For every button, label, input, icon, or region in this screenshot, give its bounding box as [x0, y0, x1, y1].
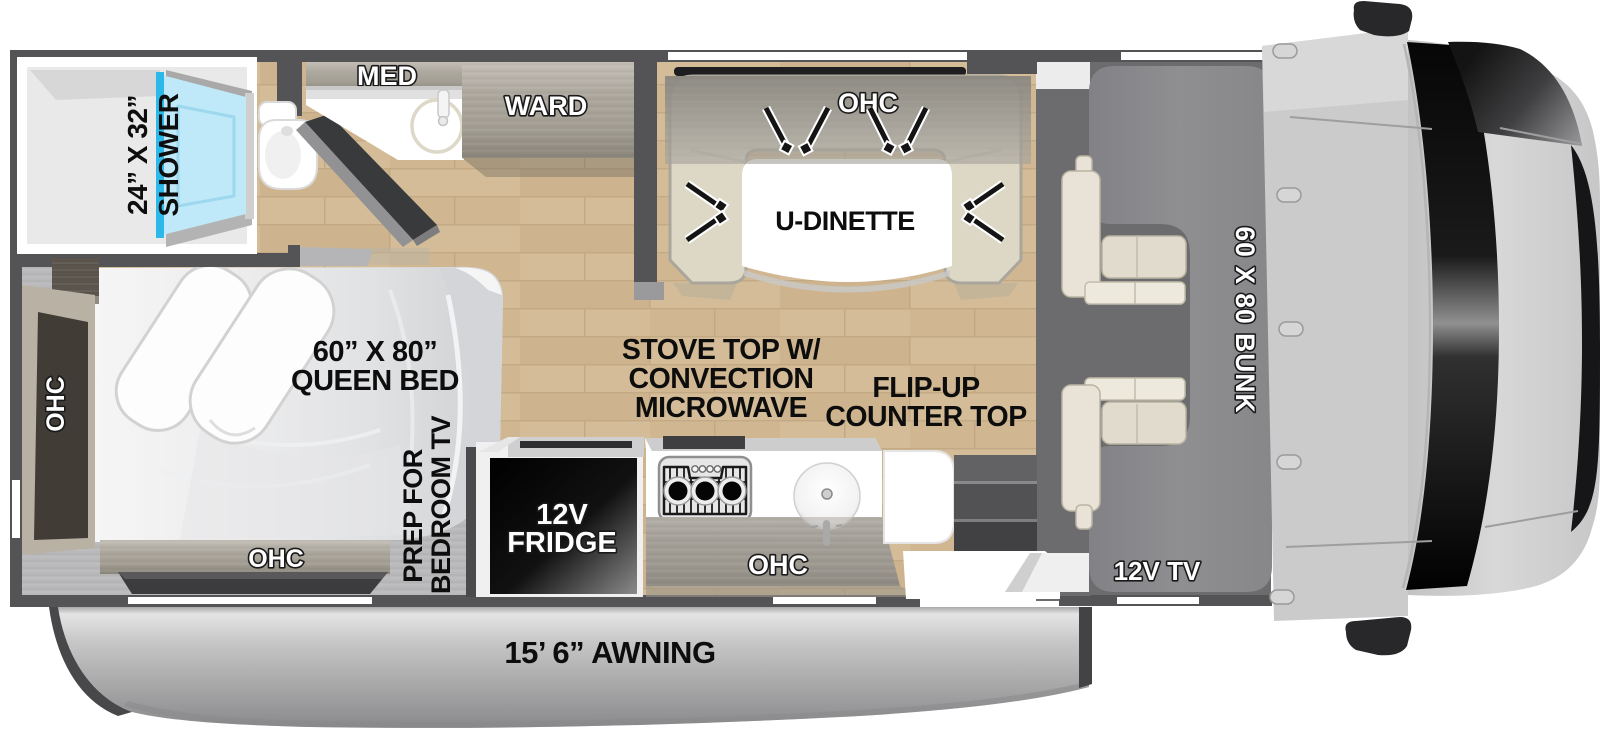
svg-text:COUNTER TOP: COUNTER TOP	[825, 401, 1027, 433]
svg-text:OHC: OHC	[748, 550, 808, 580]
svg-text:BEDROOM TV: BEDROOM TV	[426, 416, 456, 594]
svg-text:WARD: WARD	[505, 91, 588, 121]
svg-text:FRIDGE: FRIDGE	[507, 527, 617, 559]
svg-text:PREP FOR: PREP FOR	[398, 449, 428, 583]
svg-text:60” X 80”: 60” X 80”	[313, 336, 437, 368]
svg-text:QUEEN BED: QUEEN BED	[291, 365, 459, 397]
svg-text:15’ 6” AWNING: 15’ 6” AWNING	[504, 635, 715, 670]
svg-text:STOVE TOP W/: STOVE TOP W/	[622, 334, 821, 366]
svg-text:FLIP-UP: FLIP-UP	[872, 372, 980, 404]
svg-text:SHOWER: SHOWER	[153, 93, 184, 216]
svg-text:OHC: OHC	[42, 376, 70, 432]
svg-text:60 X 80 BUNK: 60 X 80 BUNK	[1230, 226, 1260, 413]
svg-text:U-DINETTE: U-DINETTE	[775, 206, 915, 236]
svg-text:24” X 32”: 24” X 32”	[122, 95, 153, 215]
svg-text:12V TV: 12V TV	[1114, 556, 1201, 586]
svg-text:MICROWAVE: MICROWAVE	[635, 392, 807, 424]
svg-text:CONVECTION: CONVECTION	[628, 363, 813, 395]
svg-text:OHC: OHC	[248, 545, 304, 573]
